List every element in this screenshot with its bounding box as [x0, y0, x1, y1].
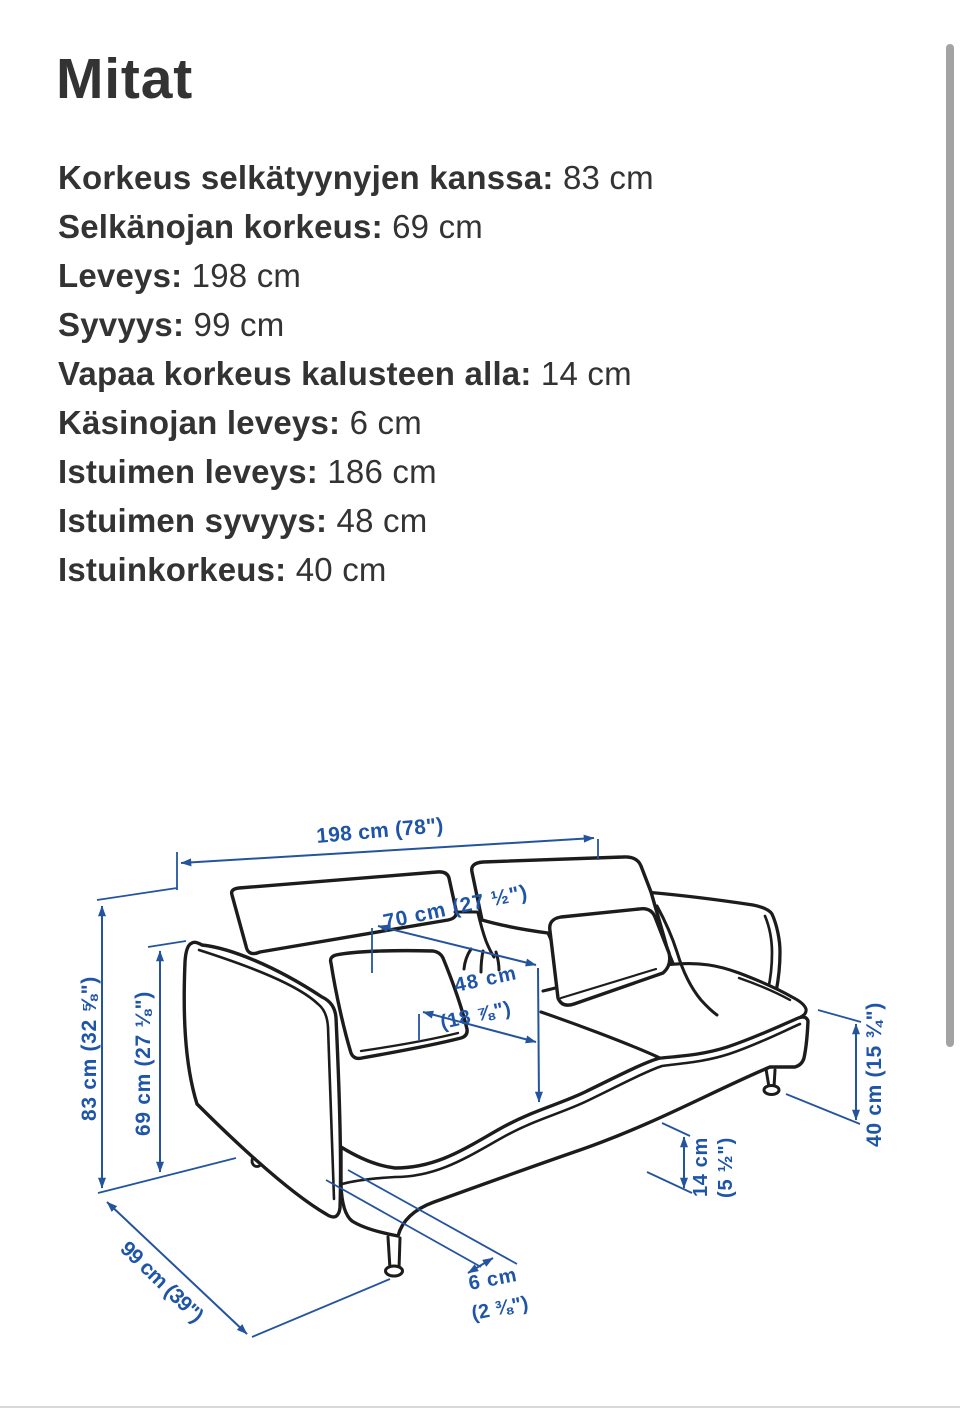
svg-text:69 cm (27 ⅛"): 69 cm (27 ⅛")	[132, 992, 155, 1136]
svg-text:83 cm (32 ⅝"): 83 cm (32 ⅝")	[78, 977, 101, 1121]
svg-text:(2 ⅜"): (2 ⅜")	[470, 1292, 530, 1324]
svg-text:198 cm (78"): 198 cm (78")	[315, 814, 444, 848]
svg-text:99 cm (39"): 99 cm (39")	[116, 1237, 208, 1327]
svg-text:40 cm (15 ¾"): 40 cm (15 ¾")	[863, 1003, 886, 1147]
svg-text:14 cm: 14 cm	[690, 1138, 712, 1197]
svg-text:(5 ½"): (5 ½")	[715, 1138, 737, 1198]
svg-text:48 cm: 48 cm	[452, 962, 517, 996]
